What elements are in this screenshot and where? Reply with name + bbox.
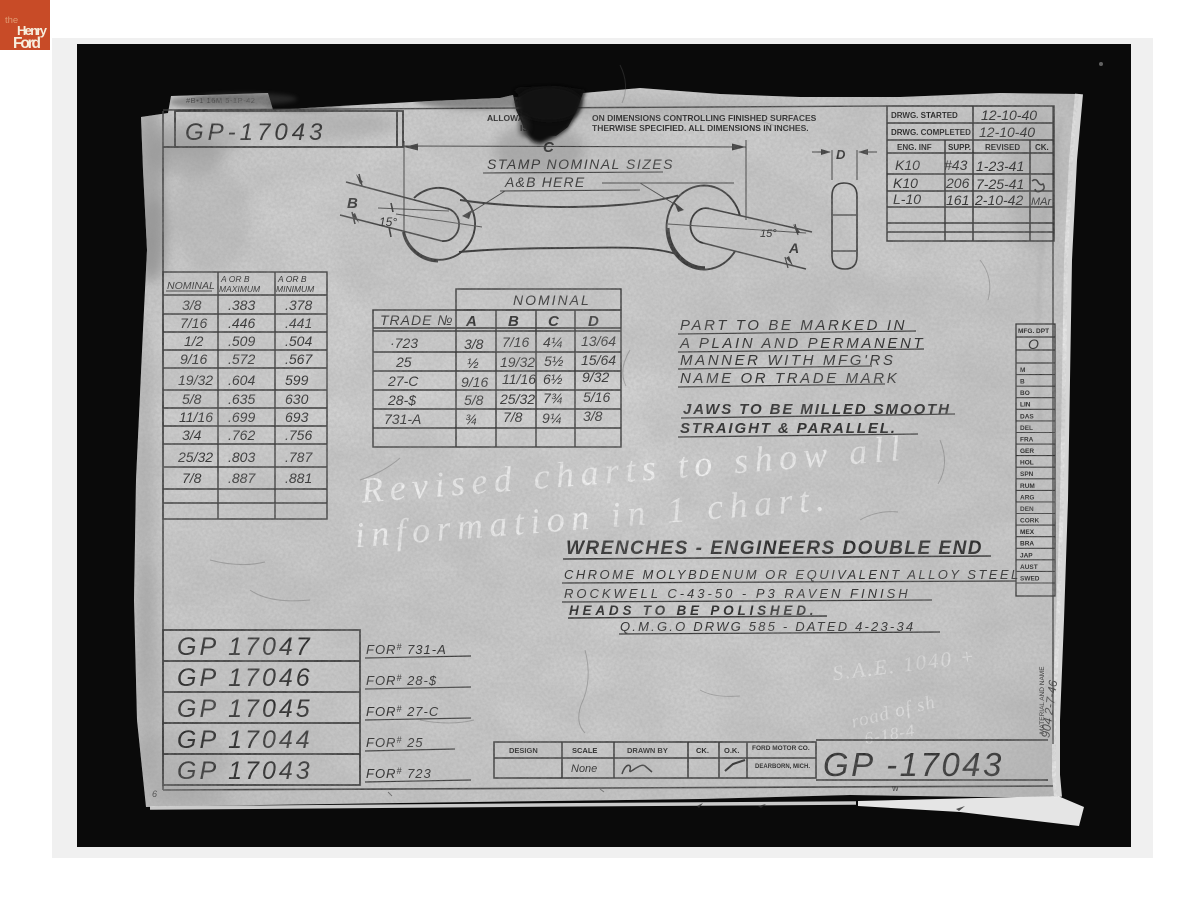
svg-text:Ford: Ford <box>13 35 41 52</box>
